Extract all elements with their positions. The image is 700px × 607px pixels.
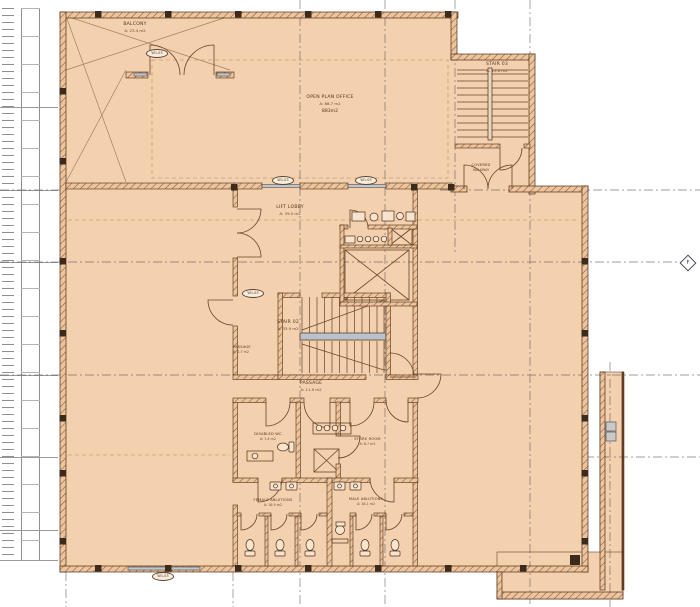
room-label-fire-passage: PASSAGE A: 1.7 m2 <box>233 345 263 354</box>
window-tag: W1.03 <box>272 176 294 185</box>
window-tag: W1.03 <box>242 289 264 298</box>
stair03-center-rail <box>488 68 492 140</box>
stair02-landing-rail <box>300 333 386 340</box>
window-tag: W1.03 <box>152 572 174 581</box>
window-tag: W1.03 <box>146 49 168 58</box>
room-label-balcony: BALCONY A: 23.4 m2 <box>100 22 170 33</box>
room-label-stair-02: STAIR 02 A: 33.9 m2 <box>258 320 318 331</box>
room-label-disabled-wc: DISABLED WC A: 3.4 m2 <box>244 432 292 441</box>
room-label-covered-link: COVERED WALKWAY <box>456 163 506 172</box>
room-label-stair-03: STAIR 03 A: 15.0 m2 <box>468 62 526 73</box>
room-label-store-room: STORE ROOM A: 6.7 m2 <box>340 437 395 446</box>
plan-linework <box>0 0 700 607</box>
room-label-male-ablutions: MALE ABLUTIONS A: 16.1 m2 <box>332 497 400 506</box>
room-label-lift-lobby: LIFT LOBBY A: 39.5 m2 <box>254 205 326 216</box>
room-label-open-plan-office: OPEN PLAN OFFICE A: 88.7 m2 883m2 <box>288 95 372 116</box>
floor-plan-canvas: BALCONY A: 23.4 m2 OPEN PLAN OFFICE A: 8… <box>0 0 700 607</box>
room-label-female-ablutions: FEMALE ABLUTIONS A: 16.9 m2 <box>238 498 308 507</box>
room-label-passage: PASSAGE A: 11.9 m2 <box>280 381 342 392</box>
window-tag: W1.03 <box>355 176 377 185</box>
